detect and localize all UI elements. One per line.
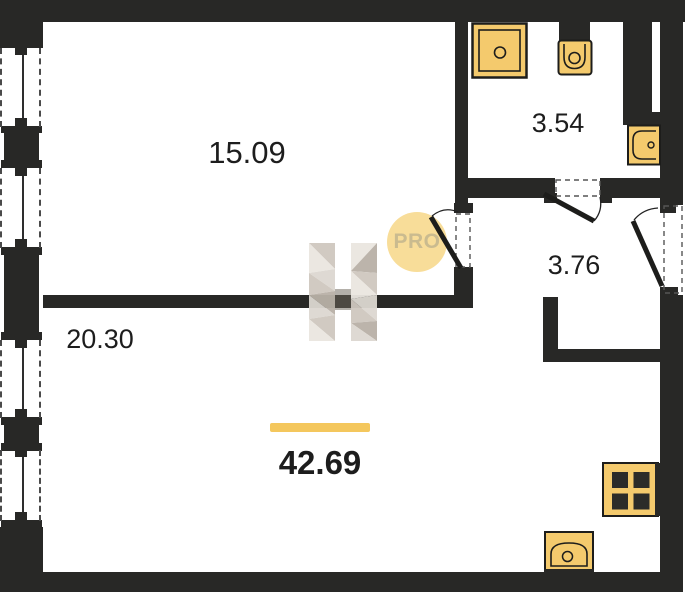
- watermark-h-logo: [307, 243, 379, 345]
- wall-bathroom-bottom-left: [455, 178, 555, 198]
- wall-room-divider: [43, 295, 472, 308]
- window-mullion: [15, 448, 27, 457]
- wall-shaft-cap: [623, 112, 662, 125]
- window-glass-line: [22, 48, 24, 127]
- door-jamb-bathroom-left: [544, 193, 557, 203]
- total-area-label: 42.69: [250, 446, 390, 480]
- wall-door-bottom-segment: [454, 267, 473, 308]
- pro-badge: PRO: [387, 212, 447, 272]
- window-pier: [4, 132, 39, 162]
- room-area-label-kitchen-living: 20.30: [40, 324, 160, 354]
- window-mullion: [15, 512, 27, 521]
- window-1: [0, 48, 41, 127]
- toilet-icon: [559, 22, 592, 75]
- room-area-label-main: 15.09: [177, 136, 317, 170]
- window-mullion: [15, 409, 27, 418]
- wall-bottom: [0, 572, 683, 592]
- door-leaf: [633, 221, 662, 286]
- shower-icon: [473, 24, 527, 78]
- door-swing-arc: [634, 208, 658, 220]
- wall-kitchen-horizontal: [543, 349, 662, 362]
- wall-shaft-partition: [623, 20, 652, 114]
- kitchen-sink-icon: [544, 532, 594, 576]
- pro-badge-label: PRO: [393, 230, 440, 254]
- wall-right-upper: [660, 0, 683, 205]
- wall-top: [0, 0, 685, 22]
- window-mullion: [15, 239, 27, 248]
- window-4: [0, 450, 41, 521]
- washbasin-icon: [628, 126, 660, 165]
- wall-left-bottom-block: [0, 527, 43, 592]
- window-3: [0, 340, 41, 418]
- door-jamb-entry-top: [660, 205, 676, 213]
- window-glass-line: [22, 340, 24, 418]
- door-jamb-entry-bottom: [660, 287, 678, 295]
- wall-left-top-block: [0, 0, 43, 48]
- window-mullion: [15, 46, 27, 55]
- wall-right-lower: [660, 295, 683, 592]
- floor-plan: PRO 15.09 20.30 3.54 3.76 42.69: [0, 0, 685, 600]
- door-jamb-room-top: [454, 203, 473, 213]
- window-pier-large: [4, 254, 39, 334]
- window-glass-line: [22, 168, 24, 248]
- door-jamb-bathroom-right: [600, 193, 612, 203]
- total-area-underline: [270, 423, 370, 432]
- room-area-label-bathroom: 3.54: [498, 108, 618, 138]
- room-area-label-hallway: 3.76: [514, 250, 634, 280]
- window-mullion: [15, 118, 27, 127]
- door-entry: [633, 206, 682, 293]
- cooktop-icon: [603, 463, 662, 516]
- window-2: [0, 168, 41, 248]
- window-glass-line: [22, 450, 24, 521]
- window-mullion: [15, 167, 27, 176]
- window-pier: [4, 424, 39, 444]
- window-mullion: [15, 339, 27, 348]
